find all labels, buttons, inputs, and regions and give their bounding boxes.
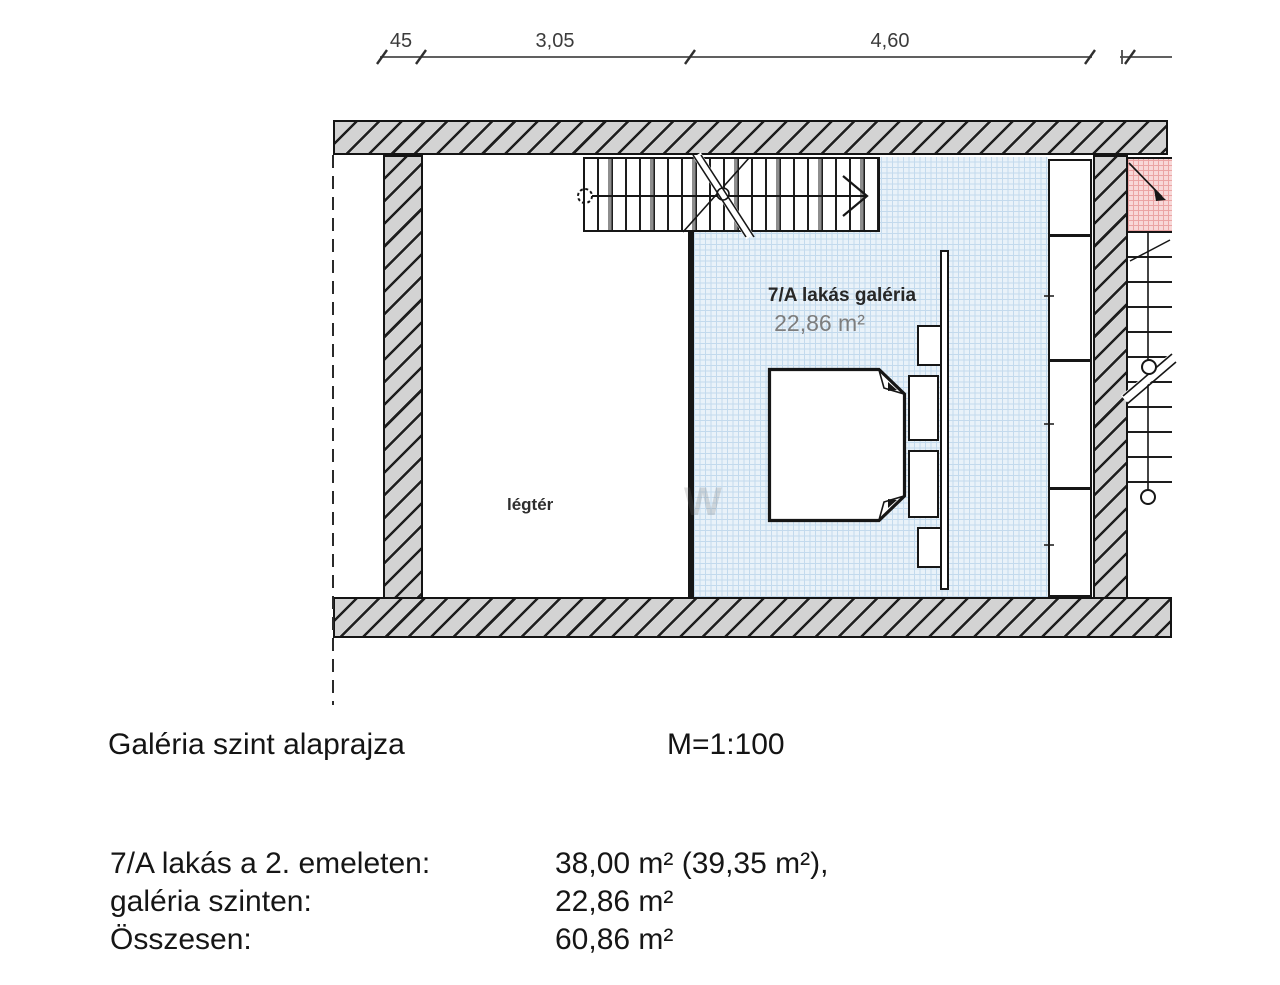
wall-hatched-bottom xyxy=(333,597,1172,638)
closet-shelf-divider xyxy=(1048,359,1092,362)
closet xyxy=(1048,159,1092,597)
floorplan-canvas: 45 3,05 4,60 W xyxy=(0,0,1280,985)
summary-value: 60,86 m² xyxy=(555,921,673,959)
dimension-line xyxy=(380,50,1172,64)
bed-pillow xyxy=(908,450,939,518)
section-dashed-line xyxy=(332,155,334,705)
watermark-artifact: W xyxy=(684,480,722,525)
wall-hatched-right xyxy=(1093,155,1128,599)
plan-scale: M=1:100 xyxy=(667,728,785,762)
gallery-boundary-line xyxy=(688,230,694,597)
wall-hatched-left xyxy=(383,155,423,599)
gallery-room-label: 7/A lakás galéria xyxy=(752,285,932,307)
summary-label: 7/A lakás a 2. emeleten: xyxy=(110,845,430,883)
wall-hatched-top xyxy=(333,120,1168,155)
closet-shelf-divider xyxy=(1048,487,1092,490)
summary-value: 22,86 m² xyxy=(555,883,673,921)
dimension-ticks xyxy=(377,50,1135,64)
plan-title: Galéria szint alaprajza xyxy=(108,728,405,762)
summary-value: 38,00 m² (39,35 m²), xyxy=(555,845,828,883)
dimension-label-305: 3,05 xyxy=(505,30,605,53)
stairs-upper-flight xyxy=(583,157,880,232)
closet-shelf-divider xyxy=(1048,234,1092,237)
summary-label: Összesen: xyxy=(110,921,252,959)
stairs-side-flight xyxy=(1128,233,1172,505)
stairs-red-landing xyxy=(1128,157,1172,233)
dimension-label-45: 45 xyxy=(376,30,426,53)
dimension-label-460: 4,60 xyxy=(840,30,940,53)
bed-pillow xyxy=(908,375,939,441)
summary-label: galéria szinten: xyxy=(110,883,312,921)
void-room-label: légtér xyxy=(507,495,553,515)
bed-headboard xyxy=(940,250,949,590)
gallery-area-label: 22,86 m² xyxy=(752,310,887,337)
